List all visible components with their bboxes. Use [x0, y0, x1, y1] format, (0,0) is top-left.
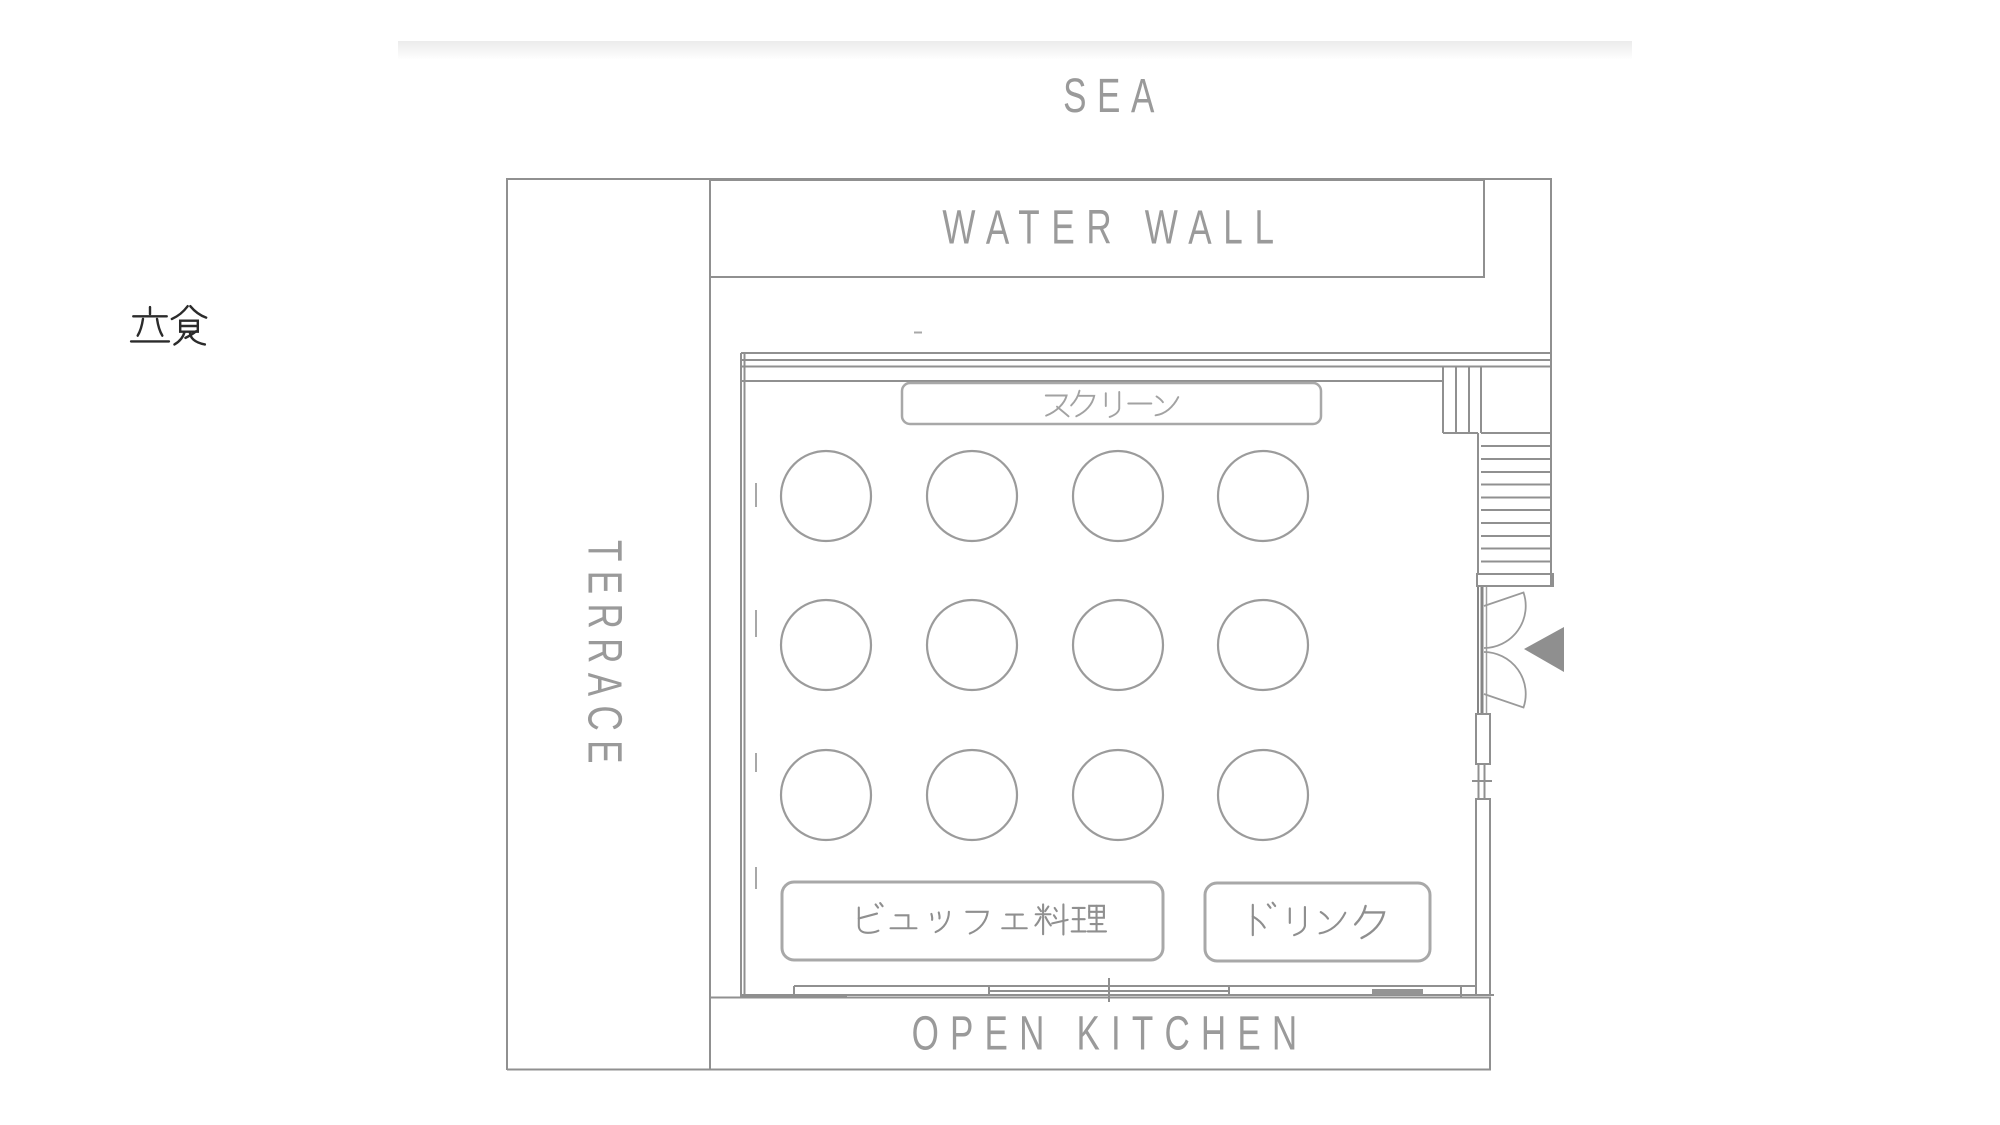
svg-text:WATER WALL: WATER WALL [942, 200, 1285, 254]
svg-text:TERRACE: TERRACE [578, 540, 632, 773]
svg-text:SEA: SEA [1063, 69, 1165, 123]
svg-text:OPEN KITCHEN: OPEN KITCHEN [912, 1006, 1309, 1060]
